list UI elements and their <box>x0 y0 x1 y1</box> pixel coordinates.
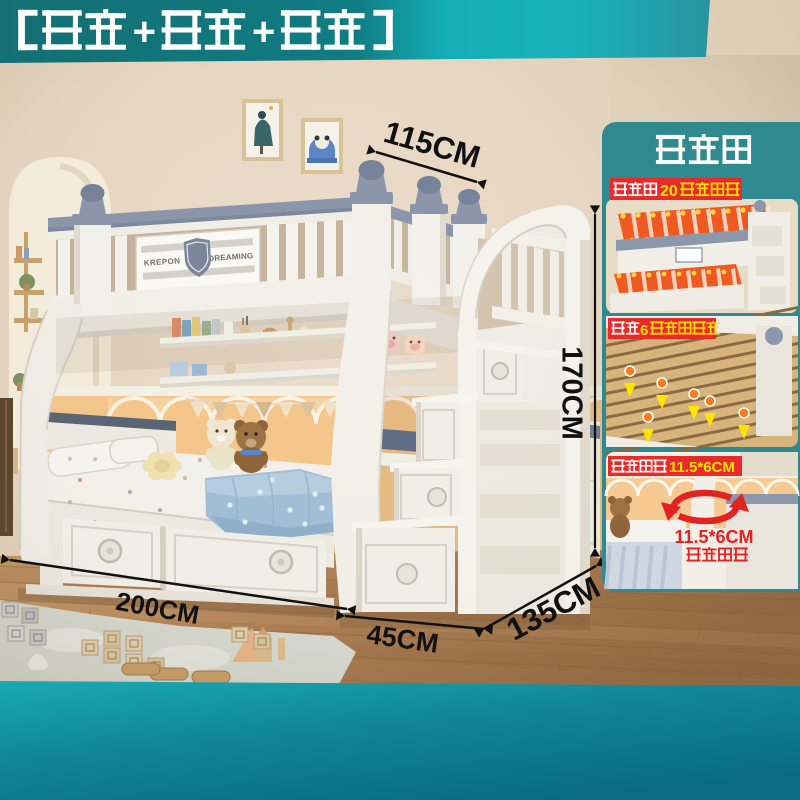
svg-text:6: 6 <box>640 322 648 339</box>
svg-text:11.5*6CM: 11.5*6CM <box>674 527 753 547</box>
svg-text:+: + <box>252 10 275 54</box>
svg-text:+: + <box>133 10 156 54</box>
svg-text:20: 20 <box>660 183 678 200</box>
svg-text:170CM: 170CM <box>555 346 587 440</box>
svg-text:11.5*6CM: 11.5*6CM <box>669 459 735 476</box>
